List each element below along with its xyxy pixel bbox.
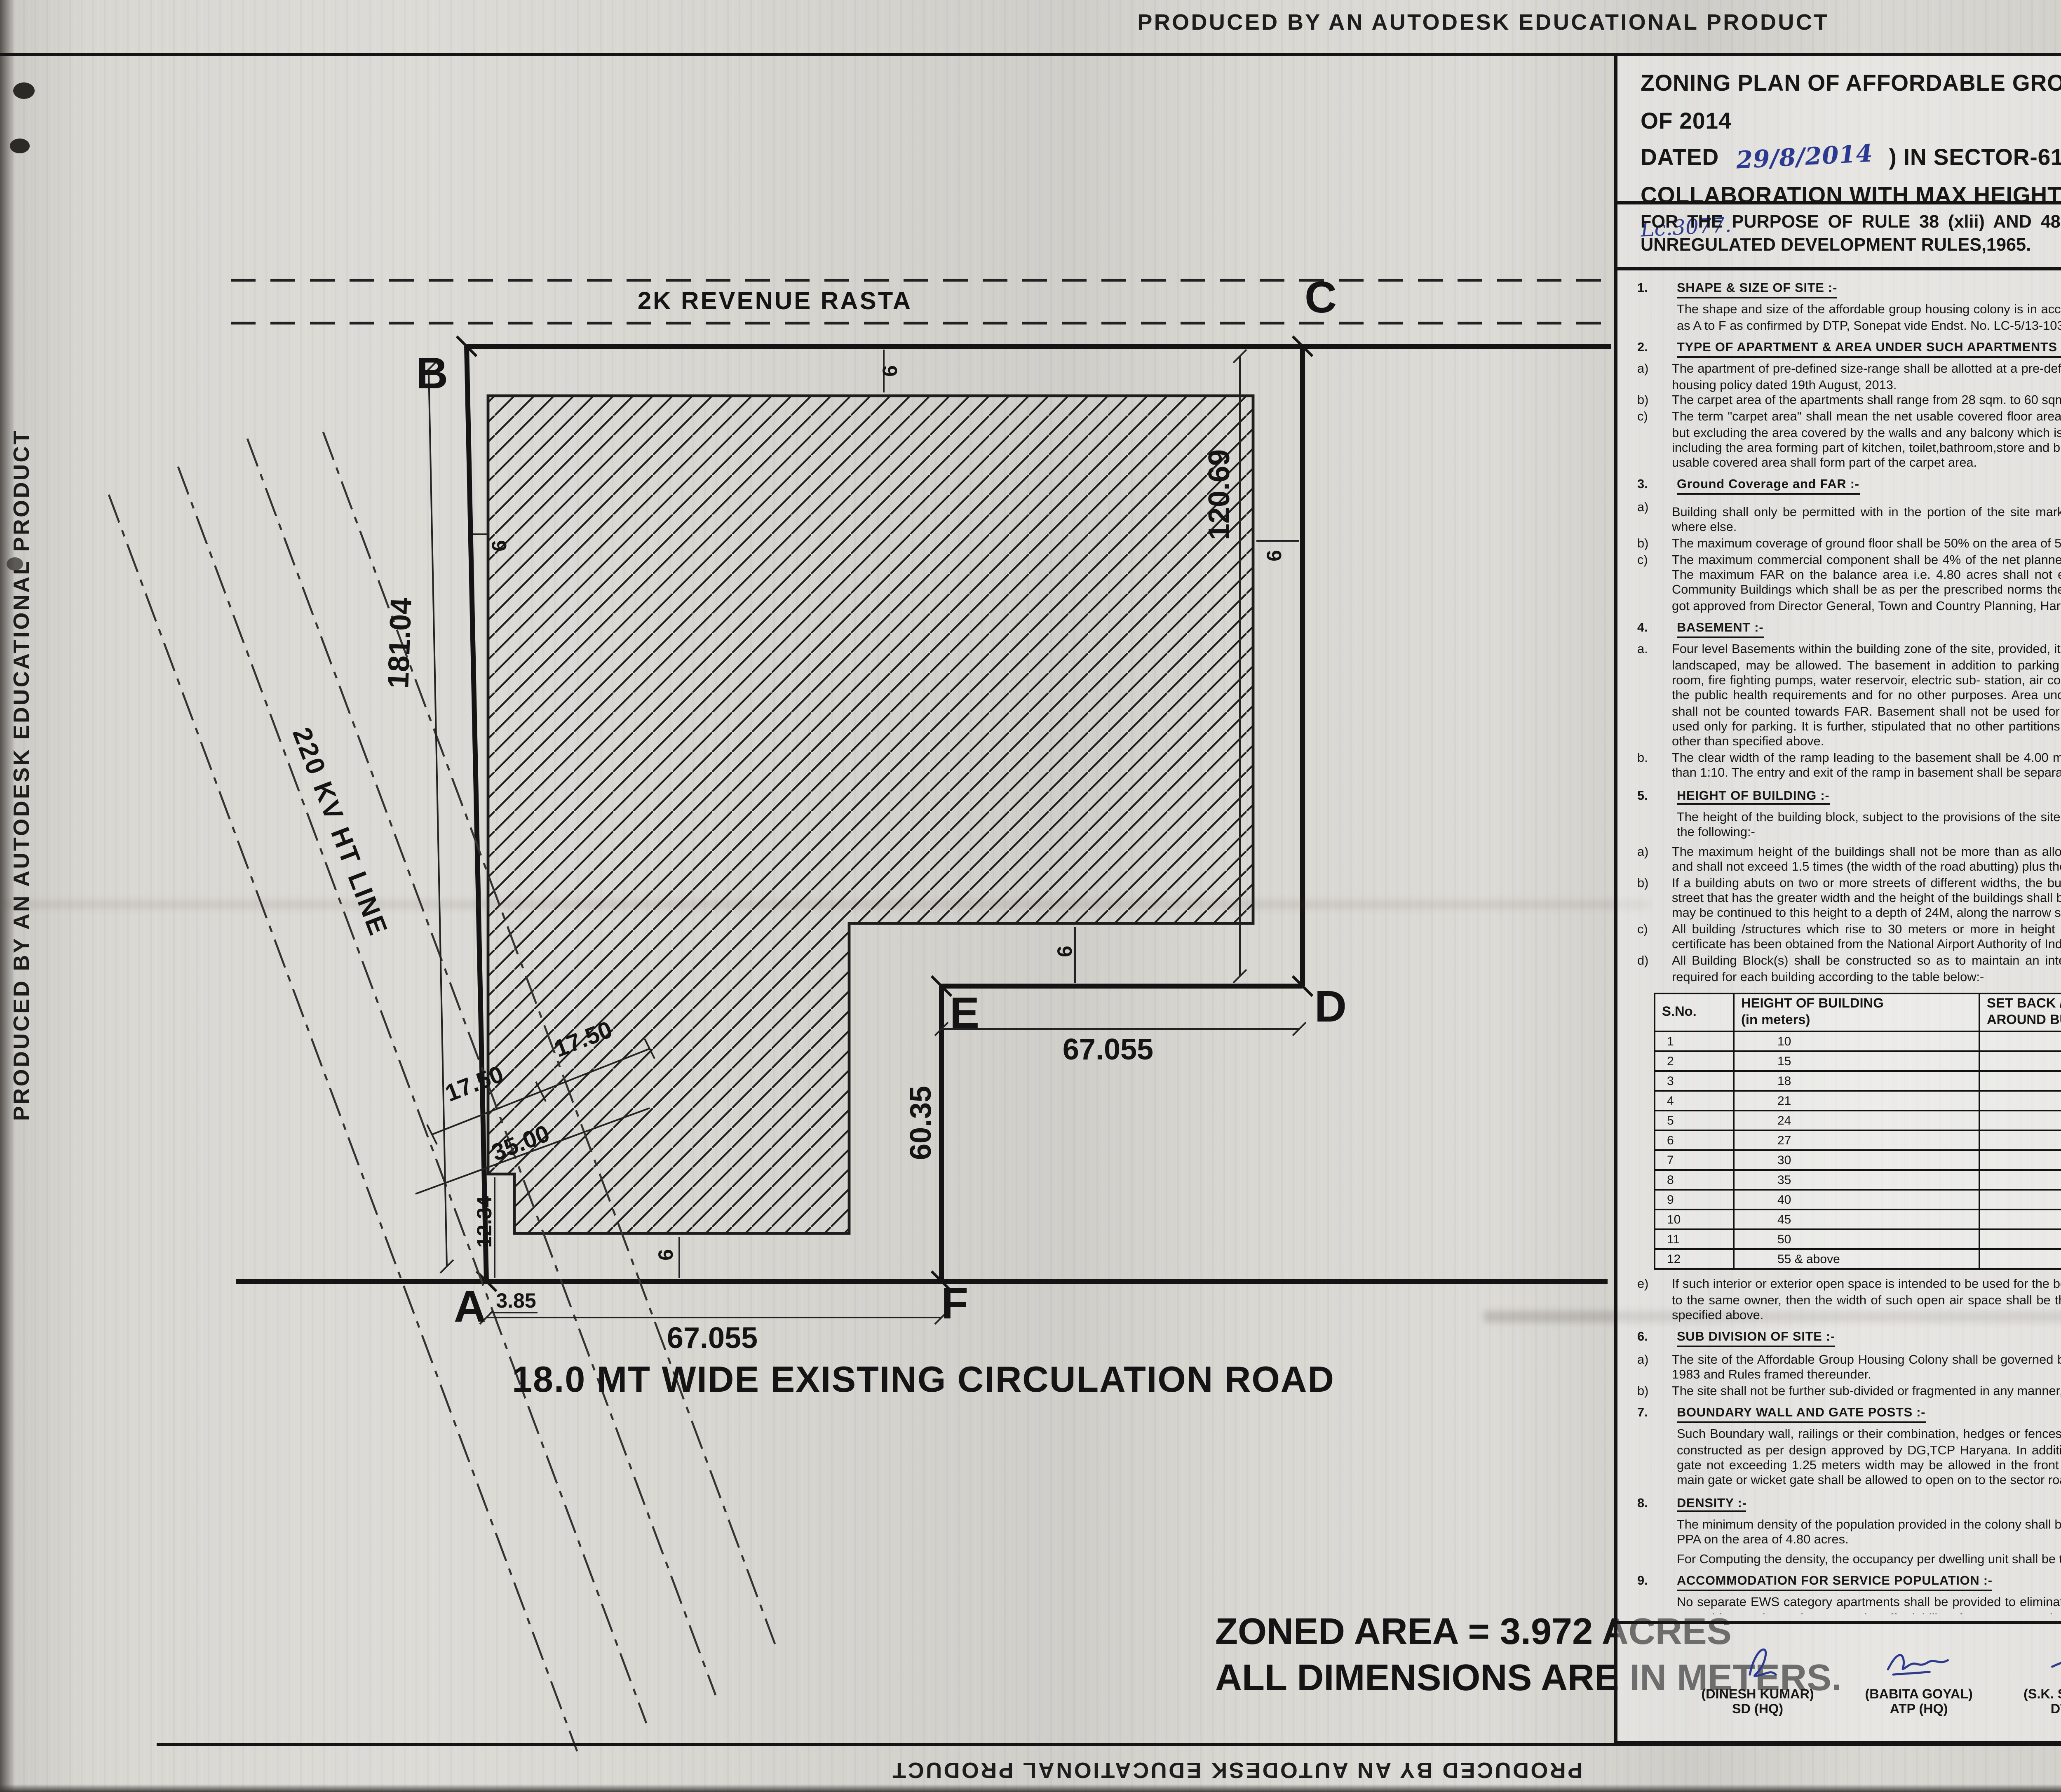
clause-heading-row: 4.BASEMENT :- [1637, 620, 2061, 638]
setback-table-cell: 6 [1655, 1130, 1734, 1150]
setback-table-cell: 1 [1655, 1031, 1734, 1051]
corner-label-c: C [1305, 273, 1337, 324]
clause-heading-row: 6.SUB DIVISION OF SITE :- [1637, 1329, 2061, 1347]
clause-section: 3.Ground Coverage and FAR :-a)Building s… [1637, 477, 2061, 613]
clause-item-text: The maximum coverage of ground floor sha… [1672, 536, 2061, 551]
title-line2-start: DATED [1641, 145, 1719, 169]
clause-section: 5.HEIGHT OF BUILDING :-The height of the… [1637, 787, 2061, 1323]
clause-paragraph: Such Boundary wall, railings or their co… [1677, 1427, 2061, 1489]
clause-item: a.Four level Basements within the buildi… [1637, 642, 2061, 749]
setback-table-cell: 55 & above [1734, 1249, 1979, 1269]
signature-row: (DINESH KUMAR)SD (HQ)(BABITA GOYAL)ATP (… [1678, 1626, 2061, 1717]
setback-table-cell: 3 [1655, 1071, 1734, 1090]
clause-heading: TYPE OF APARTMENT & AREA UNDER SUCH APAR… [1677, 340, 2061, 357]
clause-heading: Ground Coverage and FAR :- [1677, 477, 1859, 495]
clause-item: b)The carpet area of the apartments shal… [1637, 393, 2061, 409]
dim-step-h: 3.85 [496, 1289, 536, 1313]
dim-setback-bottom: 6 [655, 1249, 678, 1261]
setback-table-cell: 50 [1734, 1230, 1979, 1249]
clause-item-text: The term "carpet area" shall mean the ne… [1672, 409, 2061, 471]
setback-table-cell: 9 [1655, 1190, 1734, 1210]
setback-table-cell: 18 [1734, 1071, 1979, 1090]
clause-number: 8. [1637, 1495, 1677, 1513]
setback-table-cell: 6 [1979, 1071, 2061, 1090]
setback-table-row: 2155 [1655, 1051, 2061, 1071]
clause-item-label: b) [1637, 1383, 1672, 1398]
clause-item-label: a. [1637, 642, 1672, 749]
setback-table-cell: 12 [1979, 1190, 2061, 1210]
clause-paragraph: The shape and size of the affordable gro… [1677, 302, 2061, 333]
clause-heading: BOUNDARY WALL AND GATE POSTS :- [1677, 1405, 1925, 1423]
clause-section: 6.SUB DIVISION OF SITE :-a)The site of t… [1637, 1329, 2061, 1398]
dated-handwritten: 29/8/2014 [1725, 136, 1883, 181]
dim-notch-height: 60.35 [904, 1086, 939, 1160]
clause-heading-row: 2.TYPE OF APARTMENT & AREA UNDER SUCH AP… [1637, 340, 2061, 357]
corner-label-e: E [950, 989, 979, 1040]
setback-table-cell: 30 [1734, 1150, 1979, 1170]
clause-item-label: b) [1637, 393, 1672, 409]
setback-table-row: 6279 [1655, 1130, 2061, 1150]
clause-item: b)The site shall not be further sub-divi… [1637, 1383, 2061, 1398]
corner-label-a: A [454, 1282, 486, 1333]
dim-right-edge: 120.69 [1203, 449, 1237, 540]
setback-table-cell: 16 [1979, 1249, 2061, 1269]
clause-item-label: c) [1637, 552, 1672, 613]
clause-item-label: a) [1637, 843, 1672, 874]
setback-table-cell: 4 [1655, 1090, 1734, 1110]
clause-section: 7.BOUNDARY WALL AND GATE POSTS :-Such Bo… [1637, 1405, 2061, 1488]
buildable-zone-hatch [488, 396, 1253, 1233]
signature-initials-note [1840, 1626, 1998, 1641]
clause-paragraph: No separate EWS category apartments shal… [1677, 1595, 2061, 1614]
setback-table-row: 104513 [1655, 1210, 2061, 1230]
signature-ink [1866, 1641, 1972, 1690]
clause-item-text: All Building Block(s) shall be construct… [1672, 954, 2061, 984]
clause-heading: DENSITY :- [1677, 1495, 1747, 1513]
dim-setback-right: 6 [1263, 550, 1286, 561]
clause-intro: The height of the building block, subjec… [1677, 810, 2061, 841]
clause-item: b)The maximum coverage of ground floor s… [1637, 536, 2061, 551]
setback-table-cell: 5 [1655, 1111, 1734, 1130]
purpose-statement: FOR THE PURPOSE OF RULE 38 (xlii) AND 48… [1614, 201, 2061, 270]
setback-table-cell: 7 [1979, 1090, 2061, 1110]
clause-item-label: d) [1637, 954, 1672, 984]
clause-heading-row: 7.BOUNDARY WALL AND GATE POSTS :- [1637, 1405, 2061, 1423]
clause-item-label: c) [1637, 922, 1672, 953]
clause-item: c)The maximum commercial component shall… [1637, 552, 2061, 613]
scanned-zoning-plan-sheet: PRODUCED BY AN AUTODESK EDUCATIONAL PROD… [0, 0, 2061, 1792]
dim-setback-left: 6 [488, 540, 511, 552]
autodesk-banner-left: PRODUCED BY AN AUTODESK EDUCATIONAL PROD… [9, 429, 34, 1121]
title-line2-end: ) IN SECTOR-61, SONEPAT BEING DEVELOPED … [1889, 145, 2061, 169]
panel-divider-line [1614, 267, 2061, 270]
clauses-column-left: 1.SHAPE & SIZE OF SITE :-The shape and s… [1637, 275, 2061, 1614]
setback-table-header-row: S.No.HEIGHT OF BUILDING (in meters)SET B… [1655, 993, 2061, 1031]
clause-number: 7. [1637, 1405, 1677, 1423]
clause-heading: ACCOMMODATION FOR SERVICE POPULATION :- [1677, 1573, 1993, 1591]
clause-number: 9. [1637, 1573, 1677, 1591]
setback-table-cell: 7 [1655, 1150, 1734, 1170]
clause-section: 2.TYPE OF APARTMENT & AREA UNDER SUCH AP… [1637, 340, 2061, 471]
dim-left-edge: 181.04 [382, 597, 420, 689]
clause-heading-row: 8.DENSITY :- [1637, 1495, 2061, 1513]
clause-heading-row: 5.HEIGHT OF BUILDING :- [1637, 787, 2061, 805]
clause-number: 5. [1637, 787, 1677, 805]
setback-table-cell: 8 [1655, 1170, 1734, 1190]
setback-table-cell: 40 [1734, 1190, 1979, 1210]
setback-table-cell: 24 [1734, 1111, 1979, 1130]
clause-item: a)The apartment of pre-defined size-rang… [1637, 362, 2061, 392]
clause-paragraph: The minimum density of the population pr… [1677, 1517, 2061, 1548]
clause-item-text: The maximum height of the buildings shal… [1672, 843, 2061, 874]
setback-table-row: 3186 [1655, 1071, 2061, 1090]
binder-hole [10, 139, 30, 153]
setback-table-cell: 21 [1734, 1090, 1979, 1110]
clause-section: 4.BASEMENT :-a.Four level Basements with… [1637, 620, 2061, 781]
clause-item: a)The maximum height of the buildings sh… [1637, 843, 2061, 874]
clause-number: 4. [1637, 620, 1677, 638]
clause-heading: SHAPE & SIZE OF SITE :- [1677, 280, 1837, 298]
setback-table-cell: 27 [1734, 1130, 1979, 1150]
clause-number: 1. [1637, 280, 1677, 298]
signatory-title: SD (HQ) [1678, 1702, 1837, 1717]
clause-item-label: c) [1637, 409, 1672, 471]
clause-item-label: b) [1637, 536, 1672, 551]
boundary-left [467, 346, 486, 1281]
setback-table-cell: 15 [1734, 1051, 1979, 1071]
clause-item: a)Building shall only be permitted with … [1637, 499, 2061, 535]
corner-label-d: D [1315, 982, 1347, 1033]
clause-item-text: All building /structures which rise to 3… [1672, 922, 2061, 953]
clause-section: 1.SHAPE & SIZE OF SITE :-The shape and s… [1637, 280, 2061, 333]
signature-block: (BABITA GOYAL)ATP (HQ) [1840, 1626, 1998, 1717]
clause-item-label: a) [1637, 499, 1672, 535]
signature-initials-note [1678, 1626, 1837, 1641]
title-text: ZONING PLAN OF AFFORDABLE GROUP HOUSING … [1641, 66, 2061, 214]
setback-table-row: 1103 [1655, 1031, 2061, 1051]
setback-table-row: 73010 [1655, 1150, 2061, 1170]
clause-heading: HEIGHT OF BUILDING :- [1677, 787, 1829, 805]
setback-table-header: SET BACK / OPEN SPACE TO BE LEFT AROUND … [1979, 993, 2061, 1031]
clause-item-text: The apartment of pre-defined size-range … [1672, 362, 2061, 392]
setback-table-row: 115014 [1655, 1230, 2061, 1249]
dim-setback-top: 6 [879, 365, 902, 377]
clause-item-text: The site of the Affordable Group Housing… [1672, 1352, 2061, 1383]
signature-divider-line [1617, 1621, 2061, 1624]
setback-table-cell: 10 [1979, 1150, 2061, 1170]
clause-item-label: b. [1637, 750, 1672, 781]
setback-table-row: 5248 [1655, 1111, 2061, 1130]
clause-number: 2. [1637, 340, 1677, 357]
clause-item-text: Building shall only be permitted with in… [1672, 499, 2061, 535]
corner-label-b: B [416, 349, 448, 400]
signature-scribble [2001, 1641, 2061, 1687]
revenue-rasta-label: 2K REVENUE RASTA [638, 288, 912, 316]
clause-number: 3. [1637, 477, 1677, 495]
dim-setback-notch: 6 [1054, 946, 1077, 957]
setback-table-cell: 12 [1655, 1249, 1734, 1269]
setback-table-cell: 11 [1979, 1170, 2061, 1190]
clause-item-text: The site shall not be further sub-divide… [1672, 1383, 2061, 1398]
clause-paragraph: For Computing the density, the occupancy… [1677, 1551, 2061, 1566]
setback-table-cell: 13 [1979, 1210, 2061, 1230]
setback-table-row: 94012 [1655, 1190, 2061, 1210]
clause-heading-row: 9.ACCOMMODATION FOR SERVICE POPULATION :… [1637, 1573, 2061, 1591]
signature-ink [2027, 1641, 2061, 1690]
clause-item-text: If a building abuts on two or more stree… [1672, 875, 2061, 921]
corner-label-f: F [941, 1279, 968, 1330]
setback-table-cell: 3 [1979, 1031, 2061, 1051]
setback-table-header: S.No. [1655, 993, 1734, 1031]
clause-item-label: b) [1637, 875, 1672, 921]
setback-table-cell: 2 [1655, 1051, 1734, 1071]
clause-section: 9.ACCOMMODATION FOR SERVICE POPULATION :… [1637, 1573, 2061, 1614]
setback-table-cell: 10 [1734, 1031, 1979, 1051]
clause-heading-row: 1.SHAPE & SIZE OF SITE :- [1637, 280, 2061, 298]
binder-hole [13, 82, 35, 99]
clause-number: 6. [1637, 1329, 1677, 1347]
title-line1: ZONING PLAN OF AFFORDABLE GROUP HOUSING … [1641, 71, 2061, 96]
title-block: ZONING PLAN OF AFFORDABLE GROUP HOUSING … [1614, 56, 2061, 201]
clause-item-text: The carpet area of the apartments shall … [1672, 393, 2061, 409]
clause-item-text: Four level Basements within the building… [1672, 642, 2061, 749]
setback-table-cell: 5 [1979, 1051, 2061, 1071]
signature-scribble [1678, 1641, 1837, 1687]
clause-item-text: If such interior or exterior open space … [1672, 1277, 2061, 1323]
signature-ink [1705, 1641, 1810, 1690]
autodesk-banner-bottom: PRODUCED BY AN AUTODESK EDUCATIONAL PROD… [750, 1758, 1723, 1783]
clause-item-label: a) [1637, 362, 1672, 392]
clause-item-label: a) [1637, 1352, 1672, 1383]
setback-table-cell: 14 [1979, 1230, 2061, 1249]
clause-item-label: e) [1637, 1277, 1672, 1323]
clause-heading: BASEMENT :- [1677, 620, 1763, 638]
clause-item-text: The clear width of the ramp leading to t… [1672, 750, 2061, 781]
signatory-title: DTP (HQ) [2001, 1702, 2061, 1717]
title-line1-end: OF 2014 [1641, 109, 1731, 134]
scan-edge-shadow [0, 1784, 2061, 1792]
setback-table-cell: 9 [1979, 1130, 2061, 1150]
clause-item: a)The site of the Affordable Group Housi… [1637, 1352, 2061, 1383]
signature-scribble [1840, 1641, 1998, 1687]
clause-item: b.The clear width of the ramp leading to… [1637, 750, 2061, 781]
clause-item: d)All Building Block(s) shall be constru… [1637, 954, 2061, 984]
setback-table-row: 4217 [1655, 1090, 2061, 1110]
circulation-road-label: 18.0 MT WIDE EXISTING CIRCULATION ROAD [512, 1359, 1335, 1402]
setback-table: S.No.HEIGHT OF BUILDING (in meters)SET B… [1654, 992, 2061, 1270]
clause-heading-row: 3.Ground Coverage and FAR :- [1637, 477, 2061, 495]
signature-block: (S.K. SEHRAWAT)DTP (HQ) [2001, 1626, 2061, 1717]
clause-item: c)All building /structures which rise to… [1637, 922, 2061, 953]
setback-table-cell: 45 [1734, 1210, 1979, 1230]
clause-item: b)If a building abuts on two or more str… [1637, 875, 2061, 921]
dim-bottom-width: 67.055 [667, 1322, 758, 1356]
setback-table-cell: 35 [1734, 1170, 1979, 1190]
clause-item: c)The term "carpet area" shall mean the … [1637, 409, 2061, 471]
setback-table-cell: 11 [1655, 1230, 1734, 1249]
clause-heading: SUB DIVISION OF SITE :- [1677, 1329, 1835, 1347]
dim-step-v: 12.34 [473, 1196, 496, 1247]
clause-section: 8.DENSITY :-The minimum density of the p… [1637, 1495, 2061, 1567]
signature-initials-note [2001, 1626, 2061, 1641]
dim-notch-width: 67.055 [1063, 1033, 1153, 1068]
setback-table-row: 1255 & above16 [1655, 1249, 2061, 1269]
signature-block: (DINESH KUMAR)SD (HQ) [1678, 1626, 1837, 1717]
setback-table-cell: 10 [1655, 1210, 1734, 1230]
autodesk-banner-top: PRODUCED BY AN AUTODESK EDUCATIONAL PROD… [0, 10, 2061, 35]
setback-table-row: 83511 [1655, 1170, 2061, 1190]
setback-table-cell: 8 [1979, 1111, 2061, 1130]
setback-table-header: HEIGHT OF BUILDING (in meters) [1734, 993, 1979, 1031]
signatory-title: ATP (HQ) [1840, 1702, 1998, 1717]
clause-item-text: The maximum commercial component shall b… [1672, 552, 2061, 613]
clause-item: e)If such interior or exterior open spac… [1637, 1277, 2061, 1323]
